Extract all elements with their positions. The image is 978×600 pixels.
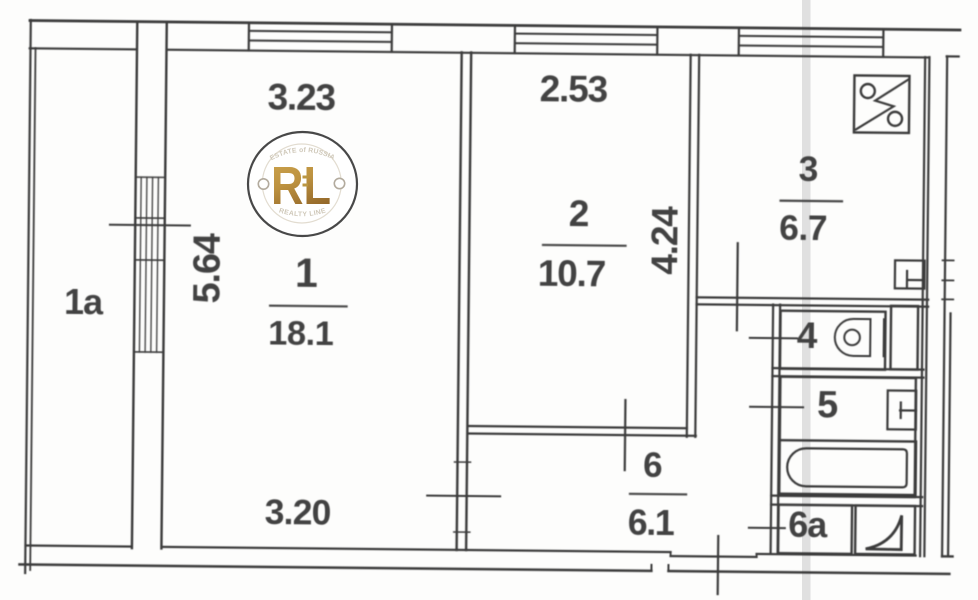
svg-text:6.7: 6.7 bbox=[779, 208, 827, 248]
svg-text:6.1: 6.1 bbox=[628, 502, 675, 543]
svg-text:18.1: 18.1 bbox=[268, 315, 334, 354]
svg-text:6a: 6a bbox=[788, 504, 828, 545]
svg-text:3.20: 3.20 bbox=[265, 492, 331, 533]
svg-text:3.23: 3.23 bbox=[267, 77, 335, 119]
svg-text:1a: 1a bbox=[64, 281, 104, 322]
svg-text:1: 1 bbox=[295, 250, 318, 296]
svg-text:6: 6 bbox=[643, 446, 663, 485]
svg-text:5: 5 bbox=[817, 384, 839, 426]
svg-text:2: 2 bbox=[569, 193, 590, 234]
svg-text:4.24: 4.24 bbox=[644, 206, 686, 275]
svg-text:5.64: 5.64 bbox=[186, 233, 229, 304]
svg-text:RL: RL bbox=[271, 156, 331, 216]
svg-text:4: 4 bbox=[797, 315, 818, 356]
svg-text:3: 3 bbox=[798, 149, 818, 189]
svg-text:10.7: 10.7 bbox=[538, 253, 606, 295]
svg-text:2.53: 2.53 bbox=[540, 68, 608, 110]
